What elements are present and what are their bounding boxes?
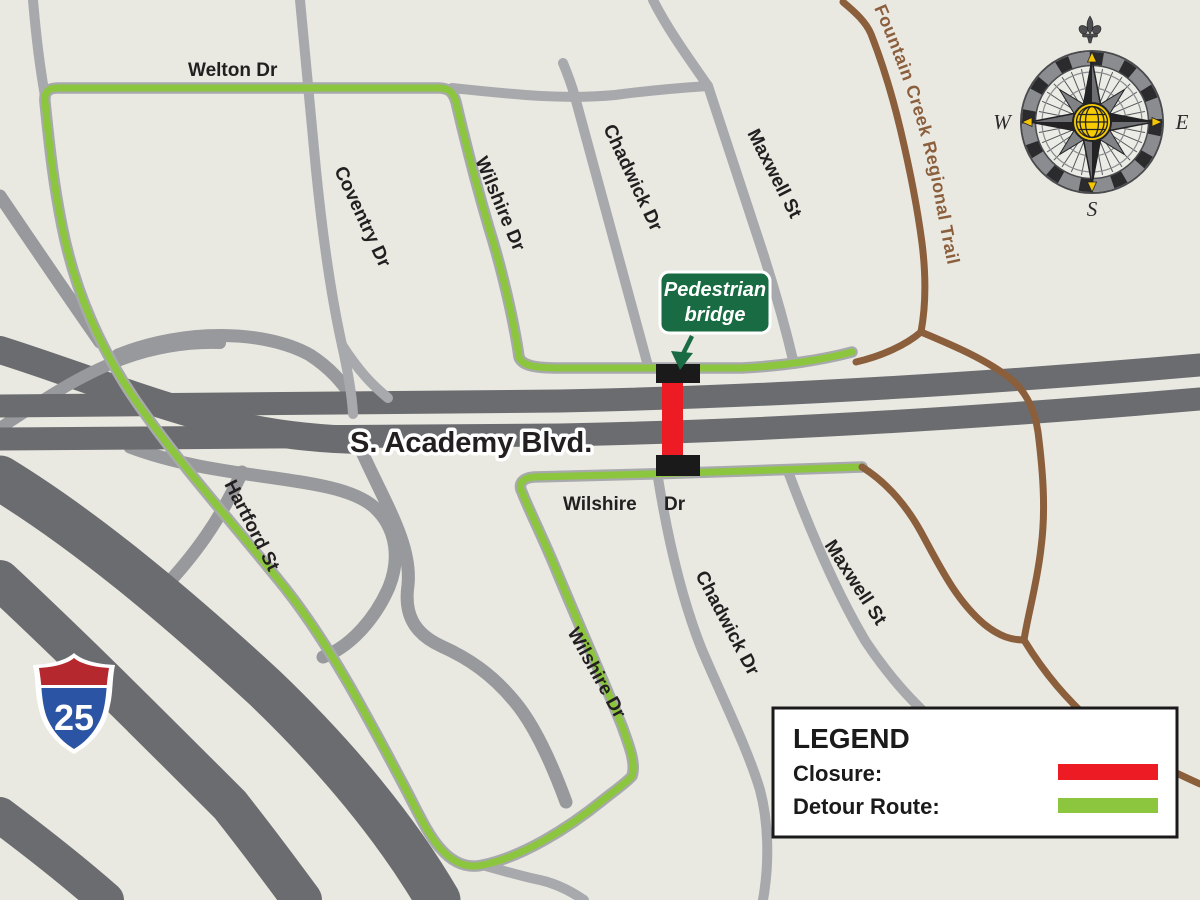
compass-west-letter: W: [993, 110, 1013, 134]
ramp-southbound: [362, 452, 566, 802]
compass-south-letter: S: [1087, 197, 1098, 221]
fleur-de-lis-icon: [1079, 16, 1101, 43]
hartford-north-stub: [33, 0, 45, 96]
chadwick-north-road: [563, 63, 648, 366]
academy-blvd-road: [0, 365, 1200, 439]
legend: LEGEND Closure: Detour Route:: [773, 708, 1177, 837]
closure-red-bar: [662, 381, 683, 458]
label-welton-dr: Welton Dr: [188, 60, 278, 81]
legend-closure-swatch: [1058, 764, 1158, 780]
callout-line1: Pedestrian: [664, 279, 766, 301]
bridge-callout: Pedestrian bridge: [660, 272, 770, 370]
callout-line2: bridge: [684, 304, 745, 326]
shield-number: 25: [54, 697, 94, 738]
interstate-25-shield: 25: [33, 653, 115, 754]
label-s-academy-blvd: S. Academy Blvd.: [350, 427, 592, 459]
trail-west-branch: [856, 332, 921, 362]
compass-rose: W E S: [993, 16, 1188, 221]
bridge-north-end: [656, 364, 700, 383]
welton-east-road: [452, 86, 708, 97]
label-wilshire-dr-frontage: Wilshire Dr: [563, 494, 686, 515]
label-wilshire-dr-south: Wilshire Dr: [563, 624, 630, 722]
compass-east-letter: E: [1175, 110, 1189, 134]
trail-main: [843, 2, 925, 332]
legend-detour-swatch: [1058, 798, 1158, 813]
detour-map: Welton Dr Coventry Dr Wilshire Dr Chadwi…: [0, 0, 1200, 900]
bridge-south-end: [656, 455, 700, 476]
i25-band-3: [0, 815, 106, 900]
hartford-southeast-stub: [486, 866, 584, 900]
chadwick-south-road: [658, 478, 767, 900]
legend-closure-label: Closure:: [793, 761, 882, 786]
label-coventry-dr: Coventry Dr: [329, 163, 394, 271]
legend-detour-label: Detour Route:: [793, 794, 940, 819]
legend-title: LEGEND: [793, 723, 910, 754]
label-chadwick-dr-south: Chadwick Dr: [691, 567, 764, 679]
